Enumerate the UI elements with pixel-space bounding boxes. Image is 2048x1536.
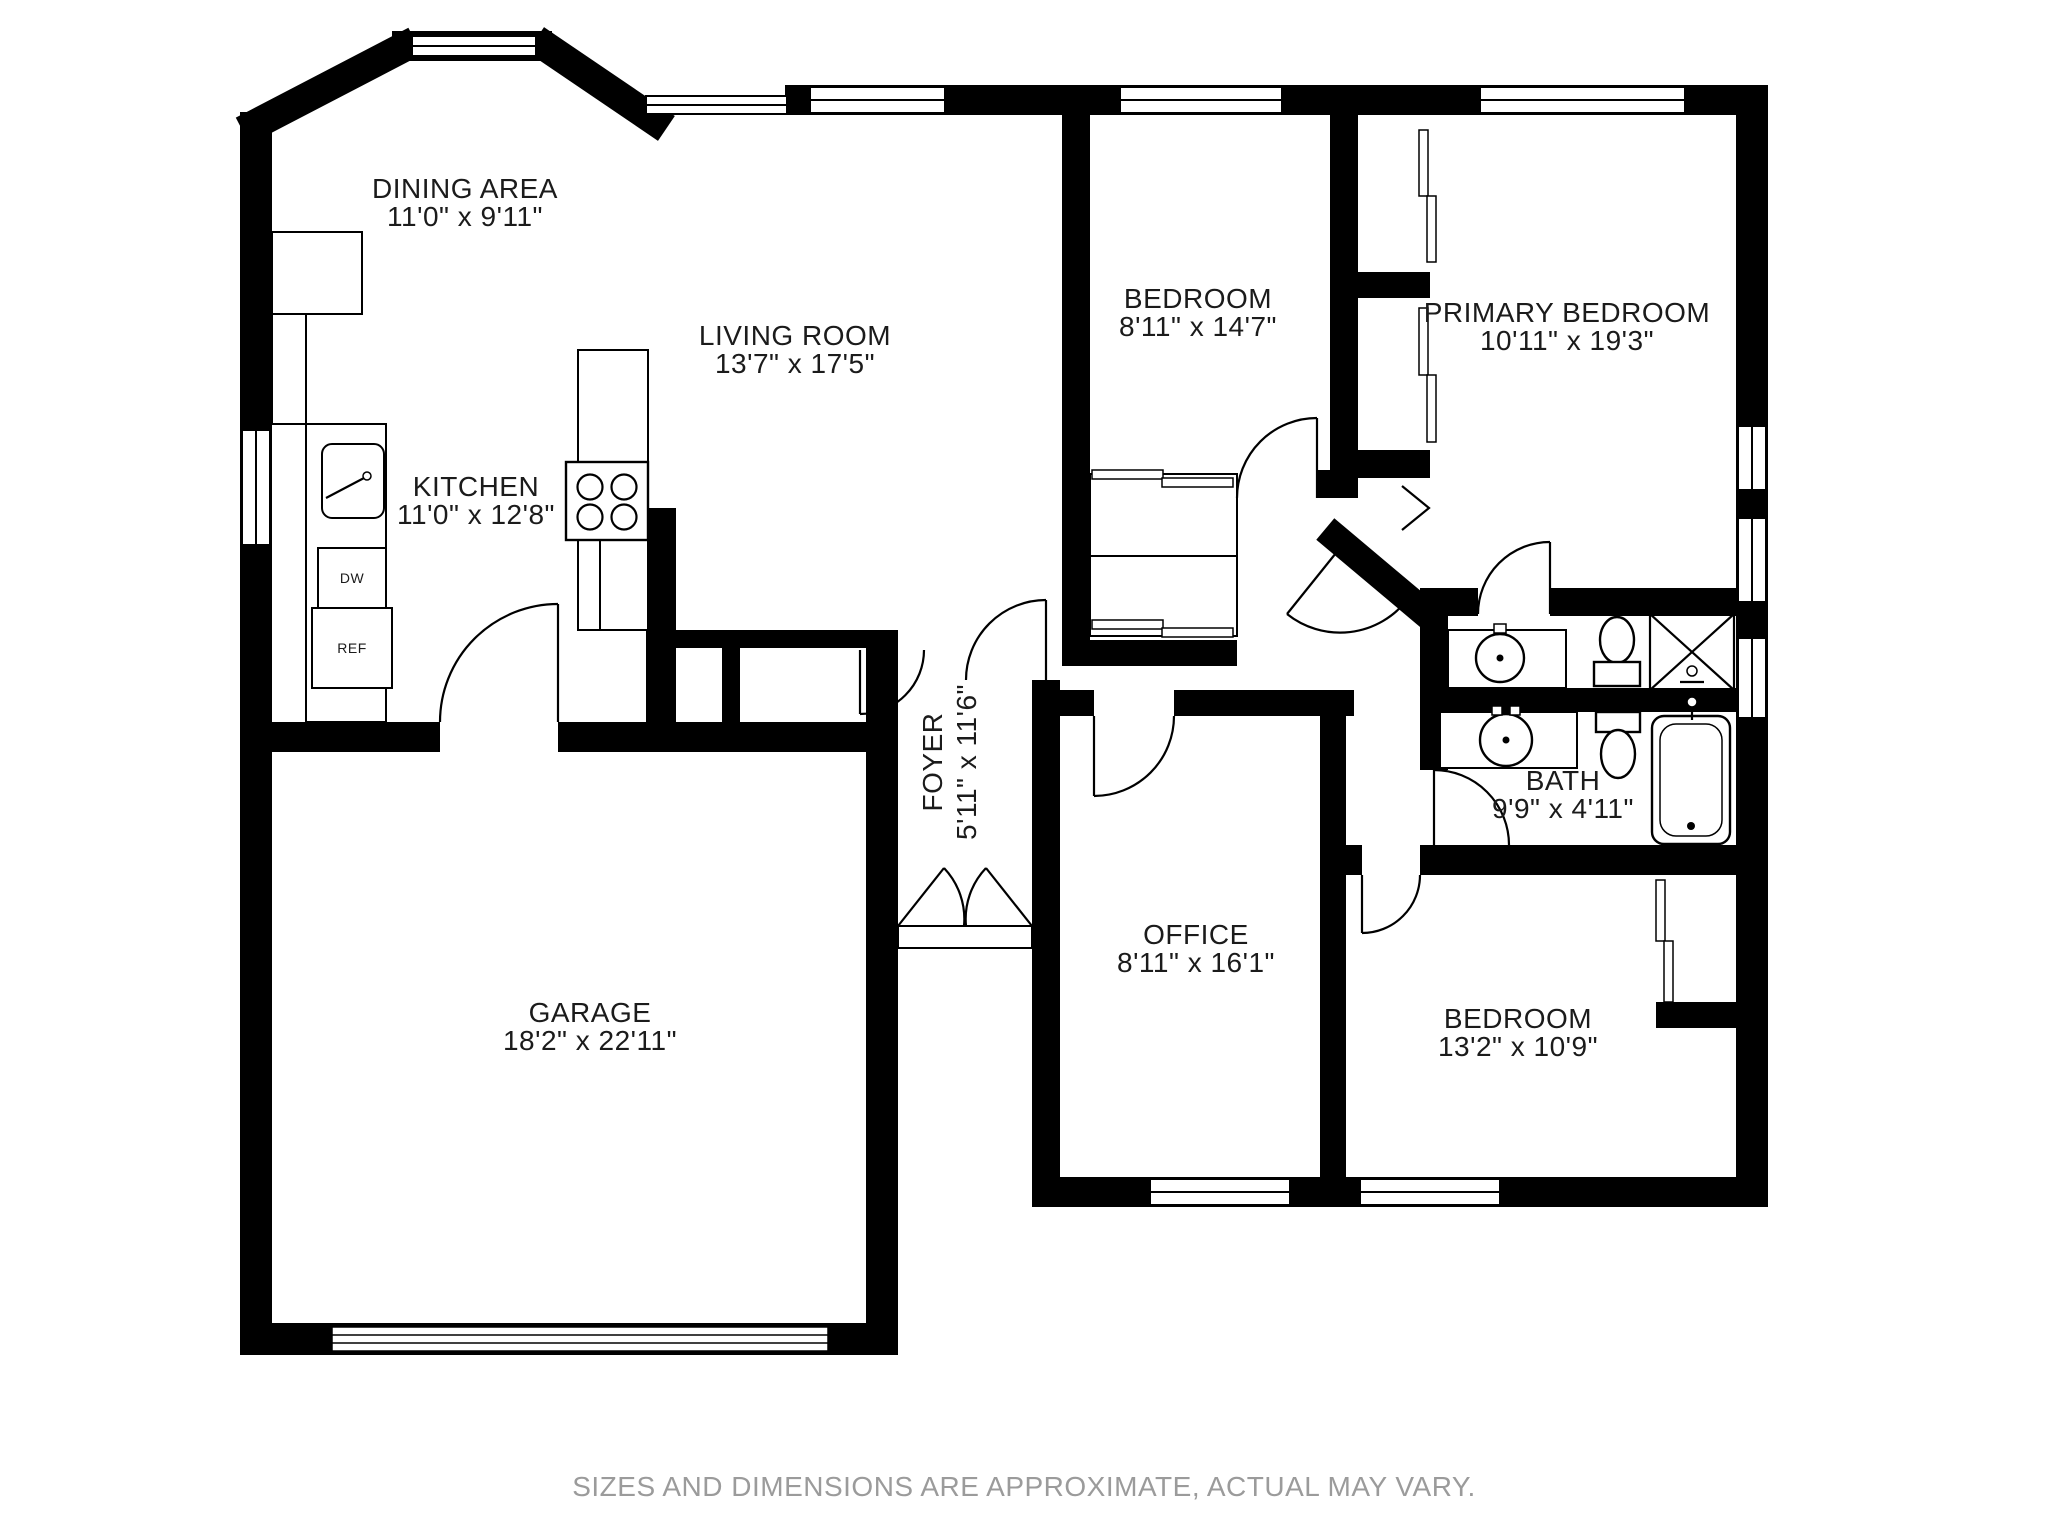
room-name: GARAGE <box>529 997 652 1028</box>
counter-strip <box>272 314 306 424</box>
dishwasher-icon: DW <box>318 548 386 608</box>
wall-primary-bath-top-right <box>1550 588 1738 616</box>
wall-foyer-top <box>646 630 898 648</box>
sliding-door <box>1092 620 1163 629</box>
room-dims: 9'9" x 4'11" <box>1492 793 1634 824</box>
wall-bedroom-closet-bottom <box>1656 1002 1738 1028</box>
sliding-door <box>1427 196 1436 262</box>
wall-bedroom-bottom-top-stub <box>1320 845 1362 875</box>
room-dims: 8'11" x 14'7" <box>1119 311 1277 342</box>
primary-bath-door-arc <box>1478 542 1550 614</box>
living-room-label: LIVING ROOM 13'7" x 17'5" <box>699 320 891 379</box>
bath-toilet-icon <box>1596 712 1640 778</box>
garage-door <box>332 1327 828 1351</box>
room-dims: 8'11" x 16'1" <box>1117 947 1275 978</box>
sliding-door <box>1162 478 1233 487</box>
room-dims: 18'2" x 22'11" <box>503 1025 677 1056</box>
kitchen-label: KITCHEN 11'0" x 12'8" <box>397 471 555 530</box>
primary-toilet-icon <box>1594 617 1640 686</box>
garage-entry-door-arc <box>440 604 558 722</box>
bedroom-bottom-label: BEDROOM 13'2" x 10'9" <box>1438 1003 1598 1062</box>
room-dims: 11'0" x 12'8" <box>397 499 555 530</box>
room-name: BEDROOM <box>1444 1003 1592 1034</box>
wall-primary-closet-divider <box>1330 272 1430 298</box>
dining-corner-counter <box>272 232 362 314</box>
sliding-door <box>1162 628 1233 637</box>
sliding-door <box>1664 941 1673 1002</box>
wall-office-top <box>1174 690 1354 716</box>
room-dims: 5'11" x 11'6" <box>951 684 982 840</box>
room-name: FOYER <box>917 713 948 812</box>
shower-icon <box>1650 614 1734 690</box>
room-name: PRIMARY BEDROOM <box>1424 297 1711 328</box>
primary-bedroom-label: PRIMARY BEDROOM 10'11" x 19'3" <box>1424 297 1711 356</box>
dishwasher-label: DW <box>340 570 365 586</box>
wall-office-top-left-stub <box>1060 690 1094 716</box>
wall-office-right <box>1320 690 1346 1207</box>
sliding-door <box>1092 470 1163 479</box>
room-name: KITCHEN <box>413 471 539 502</box>
refrigerator-label: REF <box>337 640 367 656</box>
wall-bath-bottom <box>1420 845 1738 875</box>
bedroom-bottom-door-arc <box>1362 875 1420 933</box>
floor-plan-page: DW REF <box>0 0 2048 1536</box>
wall-hall-diagonal <box>1336 538 1424 612</box>
sliding-door <box>1427 375 1436 442</box>
wall-foyer-right <box>1032 680 1060 1207</box>
wall-closet-column-left <box>1062 470 1090 666</box>
foyer-hall-door-arc <box>966 600 1046 680</box>
room-dims: 13'2" x 10'9" <box>1438 1031 1598 1062</box>
dining-area-label: DINING AREA 11'0" x 9'11" <box>372 173 558 232</box>
kitchen-sink-icon <box>322 444 384 518</box>
wall-coat-closet-left <box>722 648 740 728</box>
bedroom-top-door-arc <box>1237 418 1317 498</box>
bathtub-icon <box>1652 697 1730 844</box>
floor-plan: DW REF <box>0 0 2048 1536</box>
sliding-door <box>1419 130 1428 196</box>
room-dims: 13'7" x 17'5" <box>715 348 875 379</box>
wall-bedroom-top-left <box>1062 115 1090 470</box>
room-name: DINING AREA <box>372 173 558 204</box>
room-name: LIVING ROOM <box>699 320 891 351</box>
wall-kitchen-right <box>646 508 676 730</box>
room-dims: 11'0" x 9'11" <box>387 201 543 232</box>
primary-bath-fixtures <box>1448 614 1734 690</box>
office-door-arc <box>1094 716 1174 796</box>
wall-primary-closet-bottom <box>1330 450 1430 478</box>
wall-under-closets <box>1062 640 1237 666</box>
room-name: BEDROOM <box>1124 283 1272 314</box>
refrigerator-icon: REF <box>312 608 392 688</box>
wall-kitchen-garage <box>240 722 440 752</box>
room-name: OFFICE <box>1143 919 1249 950</box>
primary-hall-door-marker <box>1402 486 1429 530</box>
stove-icon <box>566 462 648 540</box>
office-label: OFFICE 8'11" x 16'1" <box>1117 919 1275 978</box>
sliding-door <box>1656 880 1665 941</box>
bedroom-top-label: BEDROOM 8'11" x 14'7" <box>1119 283 1277 342</box>
foyer-label: FOYER 5'11" x 11'6" <box>917 684 982 840</box>
front-entry-double-door <box>898 868 1032 948</box>
room-name: BATH <box>1526 765 1601 796</box>
garage-label: GARAGE 18'2" x 22'11" <box>503 997 677 1056</box>
room-dims: 10'11" x 19'3" <box>1480 325 1654 356</box>
disclaimer-text: SIZES AND DIMENSIONS ARE APPROXIMATE, AC… <box>572 1471 1476 1502</box>
